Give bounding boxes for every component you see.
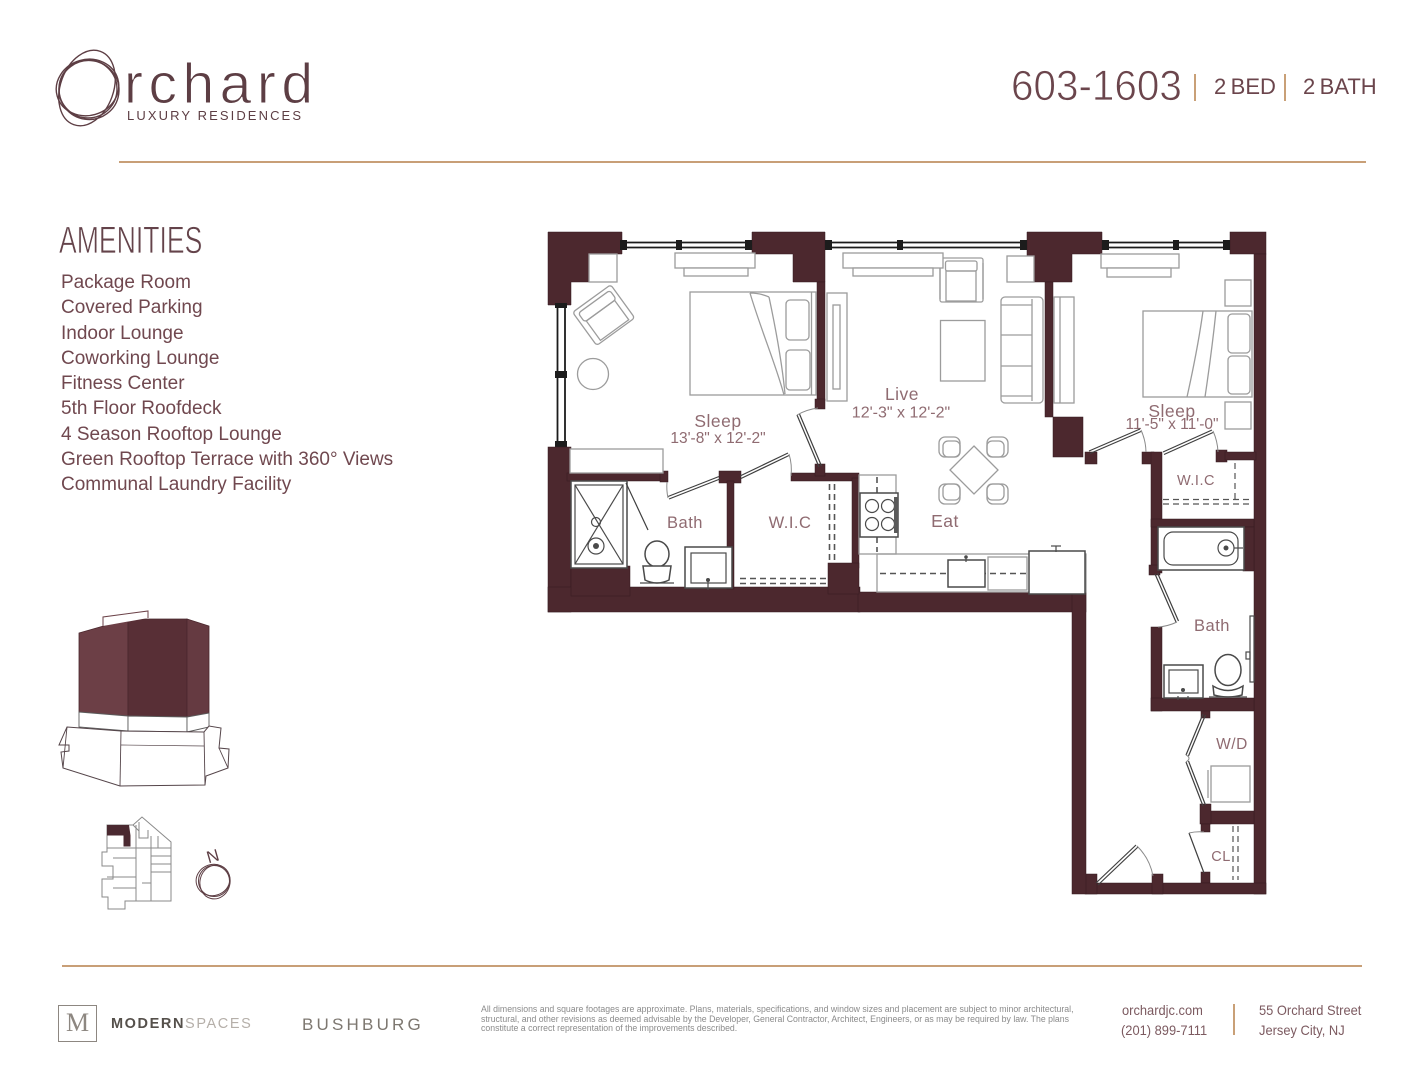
- svg-text:W.I.C: W.I.C: [769, 514, 812, 532]
- svg-text:CL: CL: [1211, 849, 1231, 865]
- svg-text:W/D: W/D: [1216, 736, 1248, 753]
- svg-text:Live: Live: [885, 384, 919, 404]
- svg-text:11'-5" x 11'-0": 11'-5" x 11'-0": [1125, 416, 1218, 433]
- svg-text:Bath: Bath: [667, 514, 703, 532]
- svg-text:Sleep: Sleep: [694, 411, 741, 431]
- svg-text:13'-8" x 12'-2": 13'-8" x 12'-2": [670, 430, 765, 447]
- svg-text:Eat: Eat: [931, 511, 959, 531]
- svg-text:12'-3" x 12'-2": 12'-3" x 12'-2": [852, 405, 950, 422]
- svg-text:W.I.C: W.I.C: [1177, 473, 1215, 489]
- svg-text:Bath: Bath: [1194, 617, 1230, 635]
